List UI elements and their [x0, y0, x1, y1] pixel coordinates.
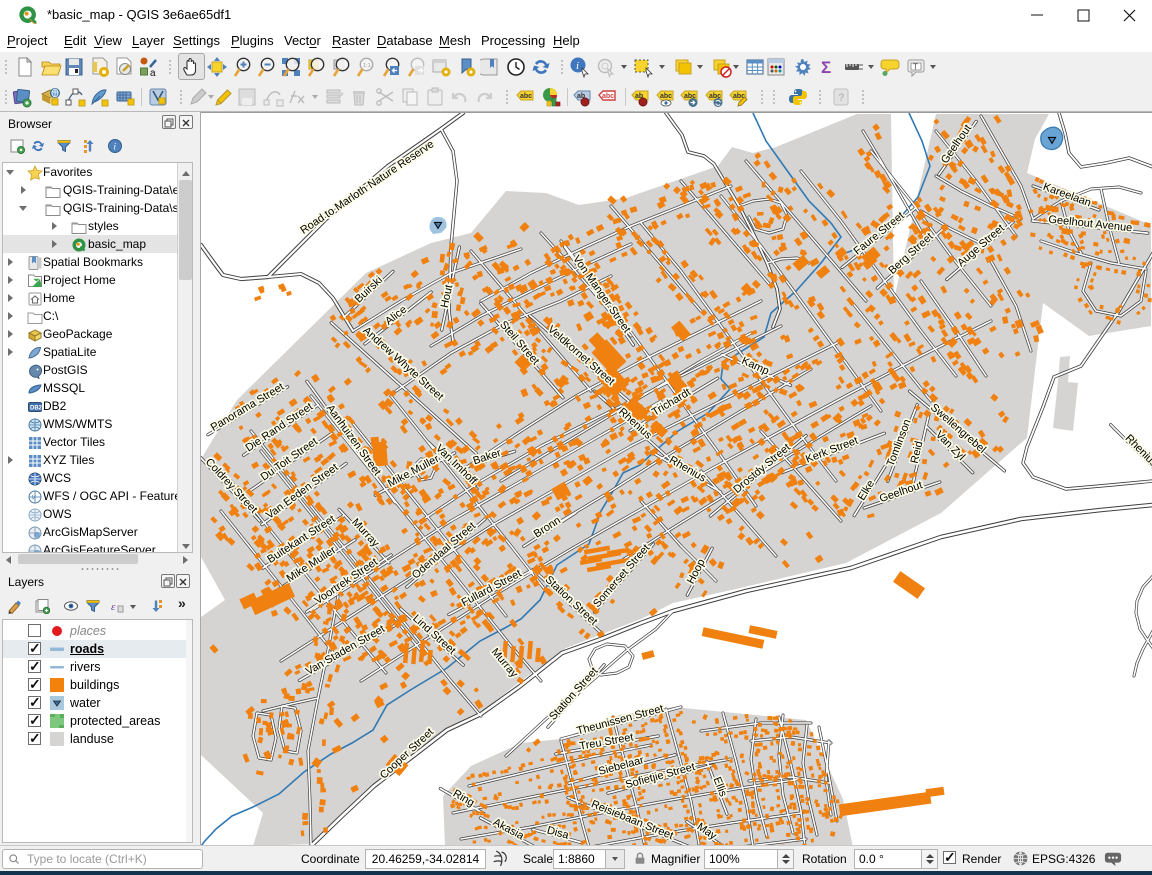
svg-text:abc: abc — [520, 93, 532, 100]
svg-text:T: T — [913, 63, 918, 72]
svg-text:a: a — [150, 68, 156, 78]
svg-text:?: ? — [838, 92, 845, 104]
svg-text:i: i — [576, 60, 579, 72]
svg-text:1:1: 1:1 — [363, 63, 371, 69]
svg-text:abc: abc — [660, 93, 672, 100]
svg-text:ε: ε — [111, 601, 116, 613]
svg-text:abc: abc — [602, 93, 614, 100]
svg-text:Σ: Σ — [821, 58, 831, 77]
svg-text:DB2: DB2 — [30, 406, 43, 412]
